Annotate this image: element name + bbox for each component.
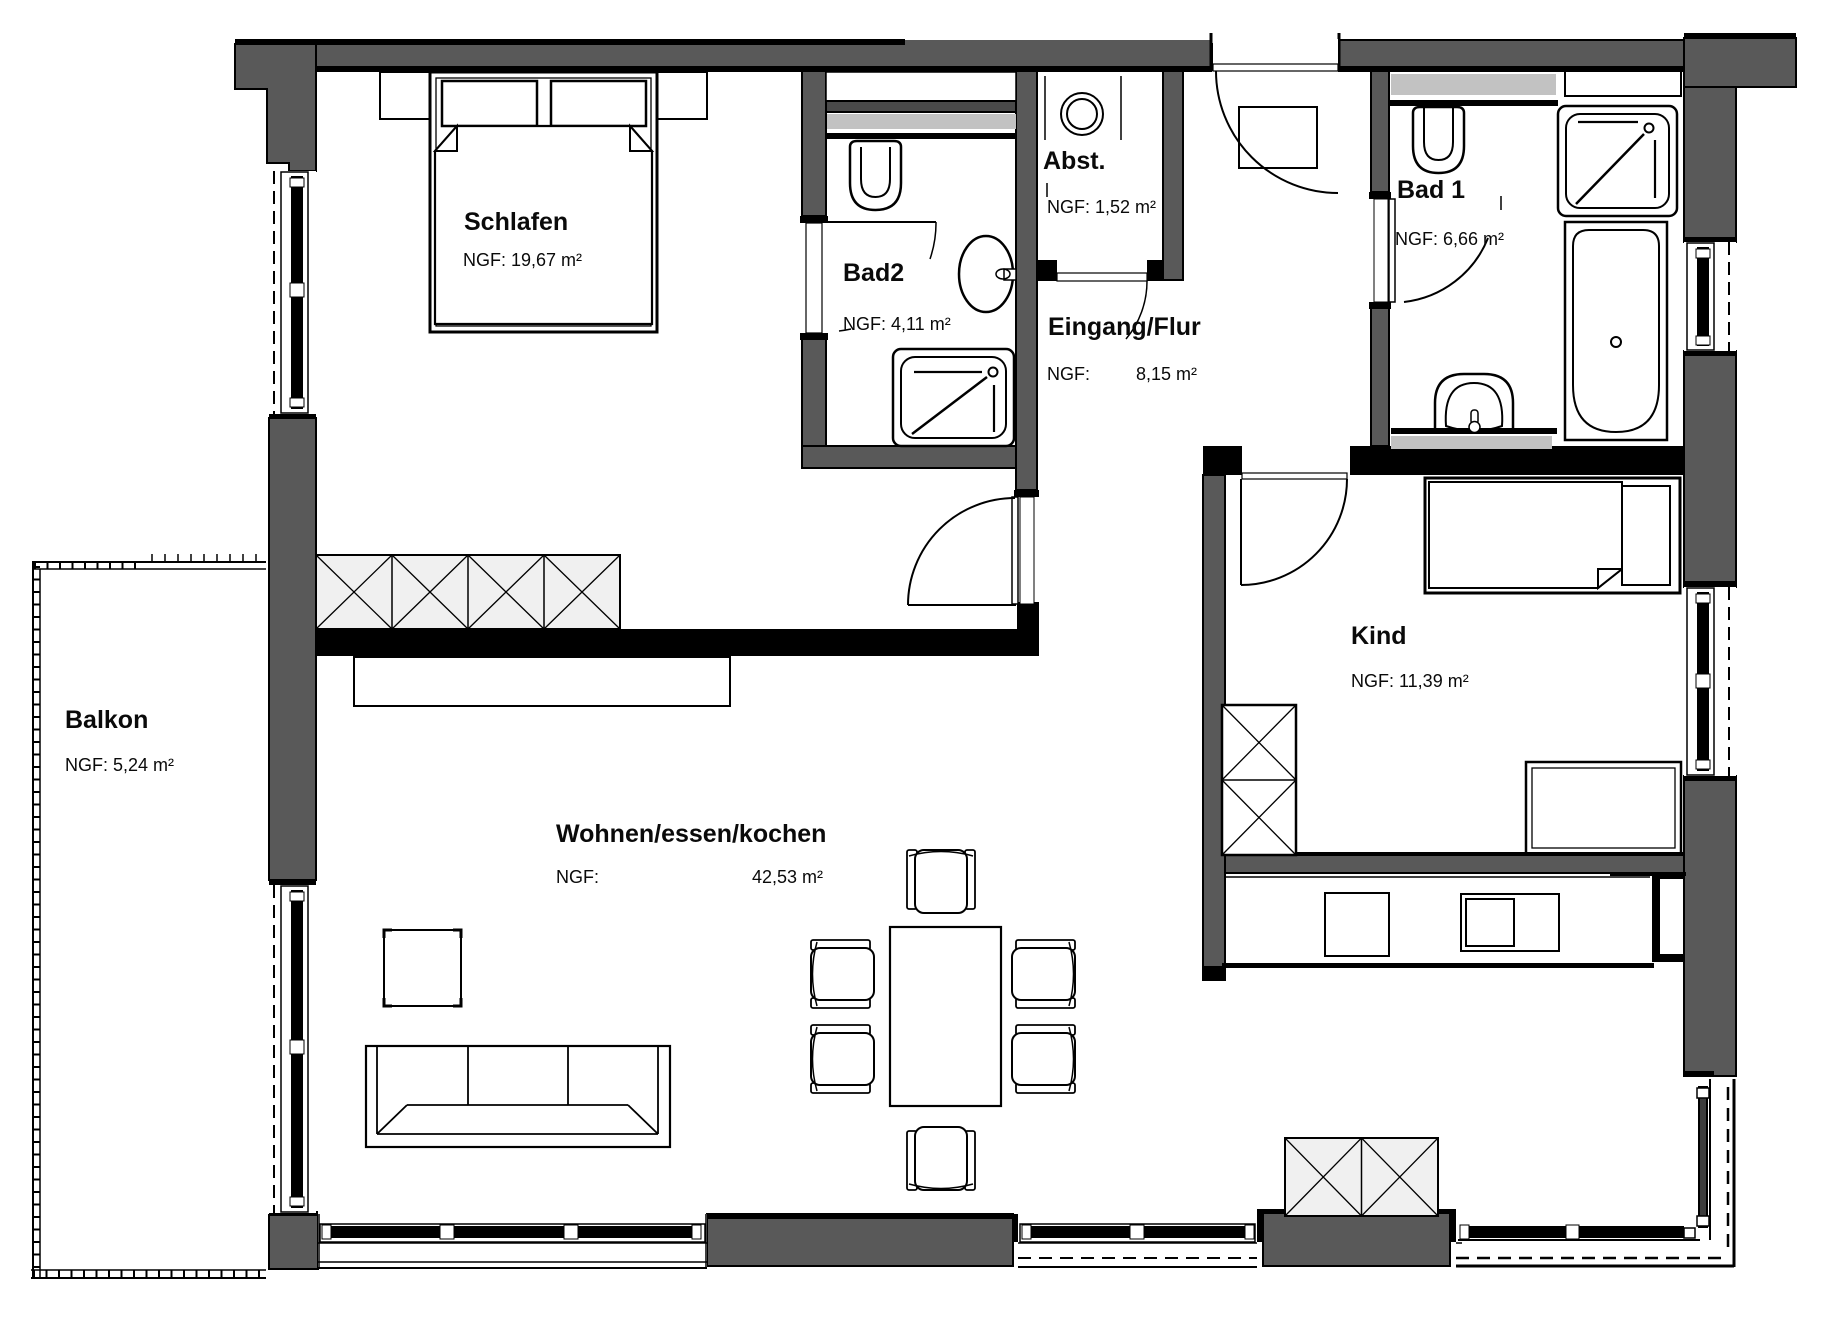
svg-text:Balkon: Balkon [65, 706, 148, 734]
svg-text:NGF: 11,39 m²: NGF: 11,39 m² [1351, 671, 1469, 691]
svg-text:NGF:: NGF: [1047, 364, 1090, 384]
svg-text:8,15 m²: 8,15 m² [1136, 364, 1197, 384]
svg-text:Bad 1: Bad 1 [1397, 176, 1465, 204]
svg-text:NGF: 1,52 m²: NGF: 1,52 m² [1047, 197, 1156, 217]
svg-text:Abst.: Abst. [1043, 147, 1106, 175]
svg-text:NGF: 4,11 m²: NGF: 4,11 m² [843, 314, 951, 334]
svg-text:Schlafen: Schlafen [464, 208, 568, 236]
svg-text:Kind: Kind [1351, 622, 1407, 650]
svg-text:NGF: 6,66 m²: NGF: 6,66 m² [1395, 229, 1504, 249]
svg-text:NGF:: NGF: [556, 867, 599, 887]
svg-text:Wohnen/essen/kochen: Wohnen/essen/kochen [556, 820, 826, 848]
svg-text:NGF: 19,67 m²: NGF: 19,67 m² [463, 250, 582, 270]
svg-text:Eingang/Flur: Eingang/Flur [1048, 313, 1201, 341]
svg-text:42,53 m²: 42,53 m² [752, 867, 823, 887]
svg-text:NGF: 5,24 m²: NGF: 5,24 m² [65, 755, 174, 775]
svg-text:Bad2: Bad2 [843, 259, 904, 287]
